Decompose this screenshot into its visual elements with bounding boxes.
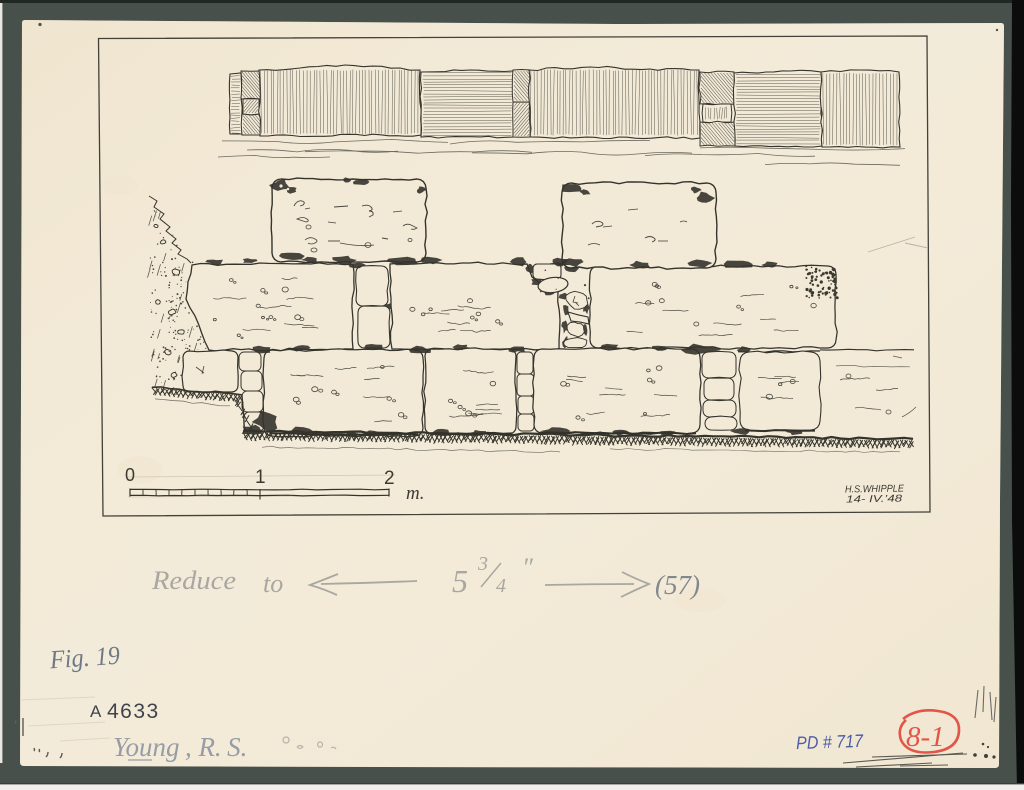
svg-text:″: ″ <box>522 553 534 582</box>
svg-text:8-1: 8-1 <box>906 721 945 753</box>
svg-text:14- IV.’48: 14- IV.’48 <box>846 494 903 506</box>
svg-text:2: 2 <box>384 468 395 489</box>
svg-text:m.: m. <box>406 483 424 504</box>
svg-text:to: to <box>263 569 283 598</box>
svg-text:PD # 717: PD # 717 <box>796 731 865 753</box>
svg-text:0: 0 <box>125 465 135 485</box>
svg-text:3: 3 <box>477 553 488 575</box>
svg-text:A: A <box>90 702 102 721</box>
svg-text:4: 4 <box>496 575 506 597</box>
svg-text:Reduce: Reduce <box>151 566 236 595</box>
svg-text:Fig. 19: Fig. 19 <box>48 641 121 675</box>
svg-text:1: 1 <box>255 467 266 488</box>
svg-text:Young , R. S.: Young , R. S. <box>113 732 247 762</box>
svg-text:5: 5 <box>452 563 468 599</box>
svg-text:(57): (57) <box>655 570 700 600</box>
svg-text:4633: 4633 <box>107 700 160 723</box>
